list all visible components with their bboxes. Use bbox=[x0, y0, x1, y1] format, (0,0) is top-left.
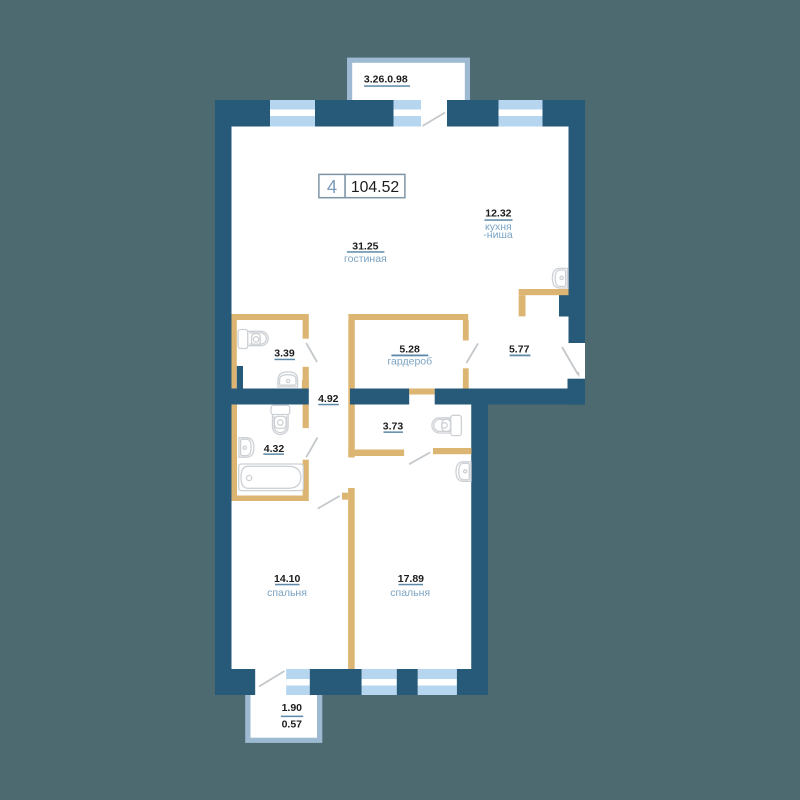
svg-text:17.89: 17.89 bbox=[398, 573, 424, 585]
svg-text:3.26.0.98: 3.26.0.98 bbox=[364, 73, 408, 85]
svg-text:104.52: 104.52 bbox=[351, 179, 399, 196]
svg-text:-ниша: -ниша bbox=[483, 229, 513, 241]
svg-text:14.10: 14.10 bbox=[274, 573, 300, 585]
svg-text:гостиная: гостиная bbox=[344, 253, 387, 265]
svg-text:12.32: 12.32 bbox=[485, 207, 511, 219]
svg-text:1.90: 1.90 bbox=[282, 702, 303, 714]
svg-text:4.92: 4.92 bbox=[318, 393, 339, 405]
svg-text:3.73: 3.73 bbox=[383, 420, 404, 432]
svg-text:спальня: спальня bbox=[267, 587, 307, 599]
svg-text:5.28: 5.28 bbox=[399, 343, 420, 355]
svg-text:0.57: 0.57 bbox=[282, 719, 303, 731]
svg-text:3.39: 3.39 bbox=[274, 348, 295, 360]
svg-text:4: 4 bbox=[327, 176, 337, 197]
svg-text:31.25: 31.25 bbox=[352, 240, 378, 252]
svg-text:спальня: спальня bbox=[390, 587, 430, 599]
svg-text:5.77: 5.77 bbox=[509, 343, 530, 355]
svg-text:гардероб: гардероб bbox=[387, 355, 432, 367]
